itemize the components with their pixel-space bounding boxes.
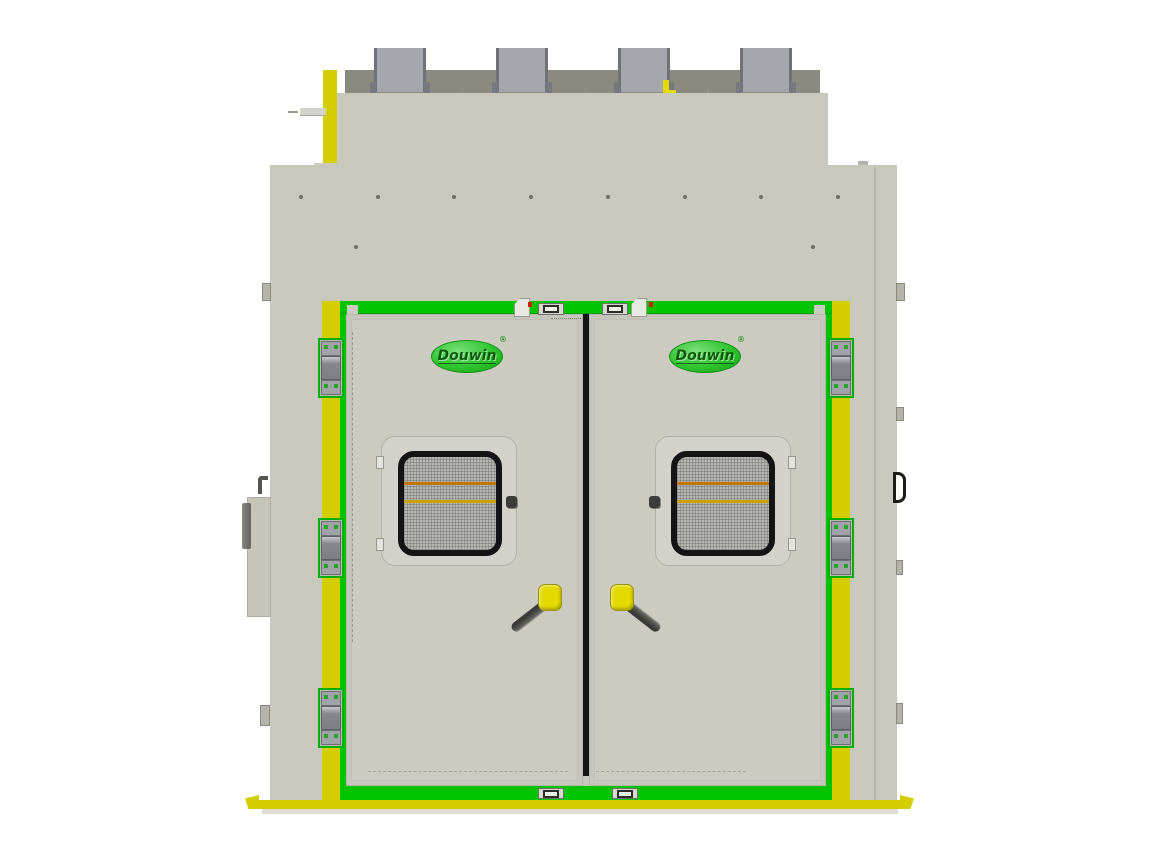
bottom-latch — [538, 788, 564, 799]
right-wall-tab — [896, 283, 905, 301]
top-dotted-mark — [551, 318, 581, 319]
louver-line-upper — [677, 482, 769, 485]
door-window — [398, 451, 502, 556]
left-side-grip — [242, 503, 251, 549]
upper-left-dash — [288, 111, 298, 113]
hinge — [828, 338, 854, 398]
top-latch — [602, 303, 628, 315]
top-bar-notch — [814, 305, 825, 314]
right-wall-tab — [896, 407, 904, 421]
roof-yellow-strip — [323, 70, 337, 167]
hinge — [318, 338, 344, 398]
right-wall-tab — [896, 703, 903, 724]
base-yellow-skirt — [253, 800, 906, 809]
hinge — [828, 518, 854, 578]
right-wall-tab — [896, 560, 903, 575]
bolt-dot — [376, 195, 380, 199]
louver-line-lower — [404, 500, 496, 503]
door-gap-dashed-line — [352, 332, 353, 642]
exhaust-block-icon — [496, 48, 548, 92]
bolt-dot — [683, 195, 687, 199]
exhaust-block-icon — [740, 48, 792, 92]
window-latch-knob — [506, 496, 517, 508]
door-handle-base — [610, 584, 634, 611]
bolt-dot — [452, 195, 456, 199]
hinge — [318, 518, 344, 578]
door-gap-center — [583, 314, 589, 776]
door-window — [671, 451, 775, 556]
hinge — [318, 688, 344, 748]
hinge — [828, 688, 854, 748]
bezel-tab — [376, 456, 384, 469]
indicator-dot — [649, 302, 653, 307]
louver-line-lower — [677, 500, 769, 503]
base-skirt-end-cap — [245, 795, 259, 809]
bolt-dot — [529, 195, 533, 199]
left-wall-tab — [262, 283, 271, 301]
door-frame-top-bar — [340, 301, 832, 314]
bottom-dashed-mark — [368, 771, 568, 772]
bolt-dot — [299, 195, 303, 199]
right-seam-line — [874, 167, 876, 802]
upper-cabinet-panel — [337, 93, 828, 169]
top-bar-notch — [347, 305, 358, 314]
bezel-tab — [788, 538, 796, 551]
left-wall-tab — [260, 705, 270, 726]
logo-text: Douwin — [438, 349, 497, 365]
bottom-dashed-mark — [596, 771, 746, 772]
enclosure-render: Douwin ® Douwin ® — [0, 0, 1174, 859]
door-frame-bottom-bar — [340, 786, 832, 801]
floor-shadow — [262, 809, 898, 814]
bolt-dot — [759, 195, 763, 199]
bolt-dot — [606, 195, 610, 199]
louver-line-upper — [404, 482, 496, 485]
logo-text: Douwin — [676, 349, 735, 365]
registered-mark: ® — [499, 335, 507, 344]
top-latch — [538, 303, 564, 315]
douwin-logo: Douwin ® — [431, 340, 503, 373]
registered-mark: ® — [737, 335, 745, 344]
bezel-tab — [376, 538, 384, 551]
bottom-latch — [612, 788, 638, 799]
exhaust-block-icon — [374, 48, 426, 92]
base-skirt-end-cap — [900, 795, 914, 809]
upper-left-tab — [300, 108, 326, 116]
door-handle-base — [538, 584, 562, 611]
bolt-dot — [811, 245, 815, 249]
right-wall-handle-icon — [893, 472, 906, 503]
douwin-logo: Douwin ® — [669, 340, 741, 373]
bezel-tab — [788, 456, 796, 469]
bolt-dot — [836, 195, 840, 199]
indicator-dot — [528, 302, 532, 307]
bolt-dot — [354, 245, 358, 249]
window-latch-knob — [649, 496, 660, 508]
left-wall-hook-icon — [258, 476, 268, 494]
